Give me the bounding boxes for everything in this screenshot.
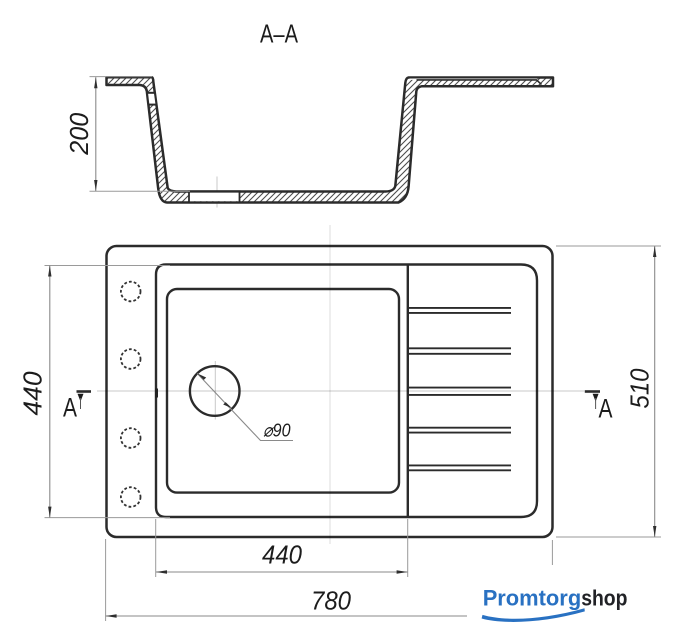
svg-text:A: A: [63, 393, 77, 423]
svg-text:440: 440: [18, 371, 48, 416]
svg-text:⌀90: ⌀90: [263, 420, 291, 441]
svg-text:shop: shop: [581, 586, 627, 611]
svg-text:510: 510: [625, 368, 655, 408]
svg-text:440: 440: [262, 540, 302, 570]
svg-text:Promtorg: Promtorg: [483, 586, 582, 611]
svg-text:A–A: A–A: [260, 19, 298, 49]
svg-text:200: 200: [64, 112, 94, 155]
svg-text:A: A: [599, 394, 613, 424]
svg-text:780: 780: [311, 586, 351, 616]
